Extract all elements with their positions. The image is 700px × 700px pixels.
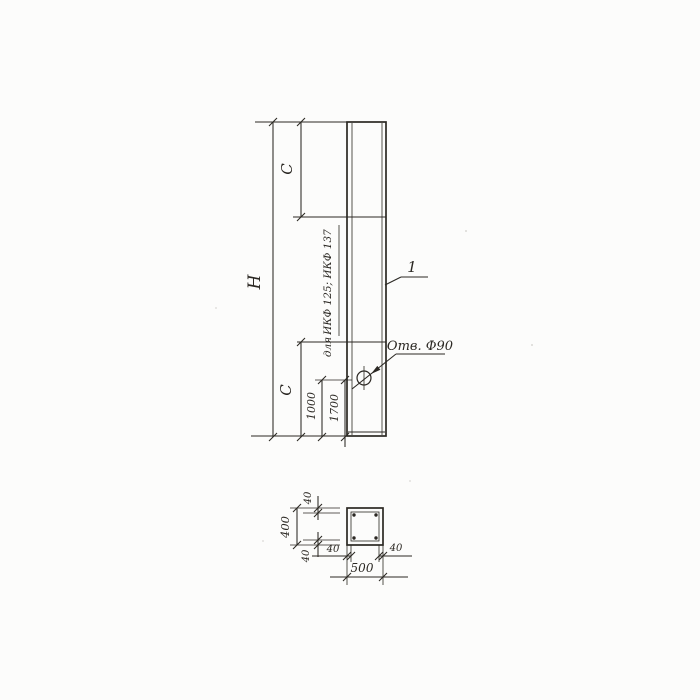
section-view: 400 40 40 40 40 500 [278, 491, 412, 585]
dim-label-40-bottom: 40 [301, 549, 312, 563]
dim-label-40-right: 40 [389, 543, 403, 554]
dim-label-1700: 1700 [328, 394, 341, 422]
dim-label-C-top: C [278, 163, 296, 175]
scanned-drawing-sheet: Отв. Ф90 1 H C C 1000 1700 ИКФ 125; ИКФ … [0, 0, 700, 700]
note-for-label: для [322, 337, 334, 357]
dim-label-40-top: 40 [303, 491, 314, 505]
dim-label-40-left: 40 [326, 544, 340, 555]
hole-circle [357, 366, 371, 390]
transverse-lines [293, 217, 386, 342]
dim-label-400: 400 [278, 516, 292, 539]
part-number-label: 1 [407, 258, 417, 276]
note-series-label: ИКФ 125; ИКФ 137 [322, 229, 334, 336]
dim-label-500: 500 [351, 561, 374, 575]
technical-drawing: Отв. Ф90 1 H C C 1000 1700 ИКФ 125; ИКФ … [0, 0, 700, 700]
rebar-dots [352, 513, 377, 539]
part-number-leader: 1 [385, 258, 428, 285]
dim-label-H: H [245, 273, 265, 290]
section-outline [347, 508, 383, 545]
elevation-view: Отв. Ф90 1 H C C 1000 1700 ИКФ 125; ИКФ … [245, 118, 453, 447]
dim-label-1000: 1000 [305, 392, 318, 420]
hole-callout-leader: Отв. Ф90 [352, 339, 453, 389]
hole-callout-label: Отв. Ф90 [387, 339, 453, 354]
dim-label-C-bottom: C [277, 384, 295, 396]
